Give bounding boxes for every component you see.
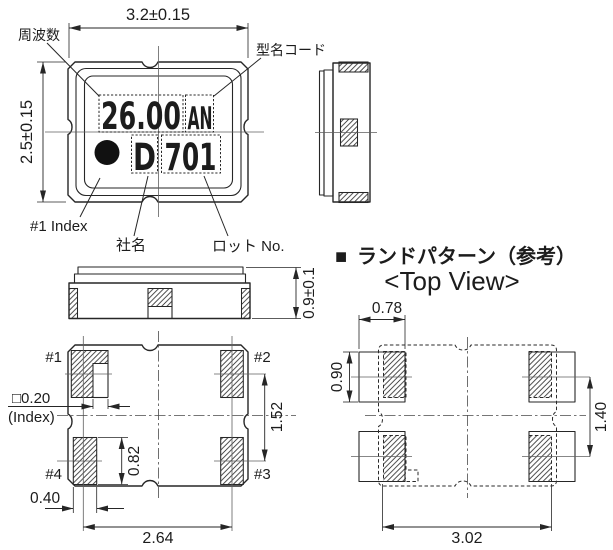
right-side-view xyxy=(315,62,377,203)
package-drawing-svg: 3.2±0.15 2.5±0.15 26.00 AN D 701 周波数 型名コ… xyxy=(0,0,613,550)
front-pad-center-hatch xyxy=(148,289,172,307)
dim-land-pitch-v-label: 1.40 xyxy=(593,402,610,433)
dim-width-label: 3.2±0.15 xyxy=(126,6,190,24)
dim-pitch-v-label: 1.52 xyxy=(269,402,286,432)
pin1-index-dot xyxy=(95,140,120,165)
marking-lot: 701 xyxy=(165,136,217,179)
dim-thickness-label: 0.9±0.1 xyxy=(301,267,318,319)
dim-land-height-label: 0.90 xyxy=(329,362,346,393)
pad-3-label: #3 xyxy=(254,466,271,483)
pad-2-label: #2 xyxy=(254,349,271,366)
dim-pitch-v: 1.52 xyxy=(265,374,286,461)
dim-land-pitch-h: 3.02 xyxy=(383,484,552,547)
section-marker-icon: ■ xyxy=(335,246,347,268)
dim-thickness: 0.9±0.1 xyxy=(246,267,318,319)
dim-height-label: 2.5±0.15 xyxy=(18,100,36,164)
dim-pitch-h: 2.64 xyxy=(83,527,232,547)
front-seam xyxy=(75,274,246,283)
label-lot: ロット No. xyxy=(212,238,285,255)
bottom-view: #1 #2 #4 #3 □0.20 (Index) 0.82 1.52 xyxy=(8,331,296,547)
label-company: 社名 xyxy=(116,237,146,254)
label-frequency: 周波数 xyxy=(18,27,60,43)
index-caption: (Index) xyxy=(8,409,55,426)
pad-1-label: #1 xyxy=(45,349,62,366)
land-pattern-subtitle: <Top View> xyxy=(384,266,519,296)
marking-model-code: AN xyxy=(188,101,213,137)
label-pin1-index: #1 Index xyxy=(30,218,88,235)
dim-pad-height-label: 0.82 xyxy=(126,446,143,476)
land-pattern-heading: ランドパターン（参考） xyxy=(357,244,576,268)
label-model-code: 型名コード xyxy=(256,42,326,58)
side-pad-top xyxy=(339,62,368,72)
front-pad-left xyxy=(69,289,78,319)
front-lid xyxy=(78,267,243,274)
front-side-view: 0.9±0.1 xyxy=(69,267,318,319)
leader-frequency xyxy=(47,43,99,96)
dim-land-pitch-h-label: 3.02 xyxy=(451,530,482,547)
land-pattern: ■ ランドパターン（参考） <Top View> 0.78 xyxy=(329,244,610,547)
dim-pad-width: 0.40 xyxy=(30,487,124,513)
dim-index-label: □0.20 xyxy=(12,390,50,407)
datasheet-drawing: 3.2±0.15 2.5±0.15 26.00 AN D 701 周波数 型名コ… xyxy=(0,0,613,550)
dim-land-pitch-v: 1.40 xyxy=(590,377,610,457)
pad-4-label: #4 xyxy=(45,466,62,483)
leader-model-code xyxy=(214,58,261,96)
dim-land-width-label: 0.78 xyxy=(372,300,402,317)
dim-index-notch: □0.20 (Index) xyxy=(8,390,130,426)
top-view: 3.2±0.15 2.5±0.15 26.00 AN D 701 周波数 型名コ… xyxy=(18,6,326,255)
leader-pin1-index xyxy=(80,178,100,217)
side-pad-bottom xyxy=(339,193,368,203)
leader-company xyxy=(134,176,148,236)
dim-land-width: 0.78 xyxy=(359,300,405,349)
marking-frequency: 26.00 xyxy=(101,95,181,138)
dim-pad-height: 0.82 xyxy=(98,438,143,485)
marking-company: D xyxy=(133,136,156,179)
dim-pitch-h-label: 2.64 xyxy=(142,530,173,547)
leader-lot xyxy=(204,176,228,236)
front-pad-right xyxy=(242,289,251,319)
dim-pad-width-label: 0.40 xyxy=(30,490,61,507)
